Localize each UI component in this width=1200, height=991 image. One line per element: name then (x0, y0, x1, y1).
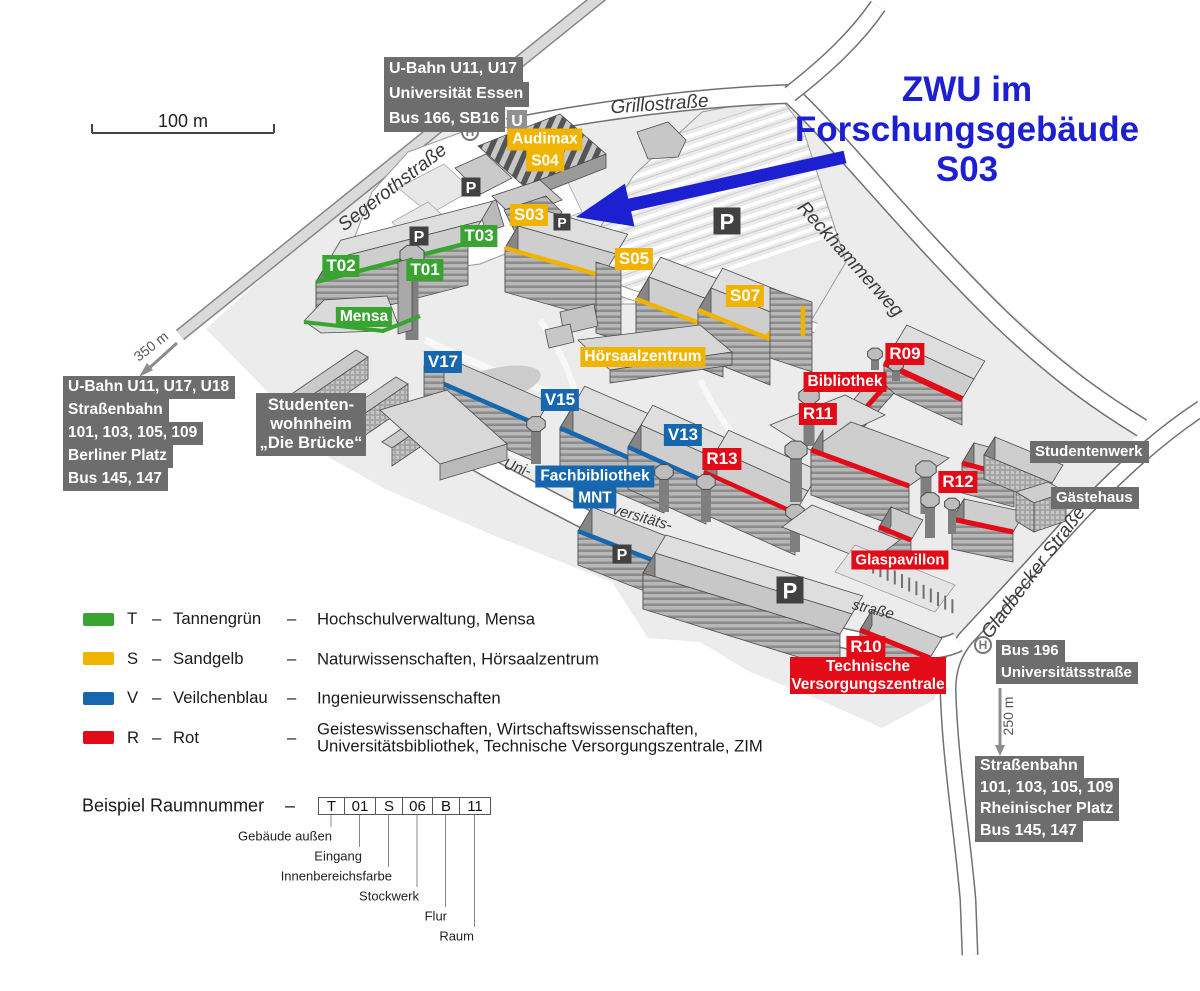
svg-text:250 m: 250 m (1000, 697, 1016, 736)
svg-text:350 m: 350 m (131, 328, 172, 365)
svg-text:P: P (557, 214, 566, 230)
svg-text:P: P (720, 210, 735, 235)
svg-text:P: P (466, 180, 477, 197)
svg-text:P: P (783, 579, 798, 604)
svg-text:P: P (414, 229, 425, 246)
svg-text:H: H (979, 638, 988, 652)
svg-text:100 m: 100 m (158, 111, 208, 131)
svg-text:P: P (617, 547, 628, 564)
